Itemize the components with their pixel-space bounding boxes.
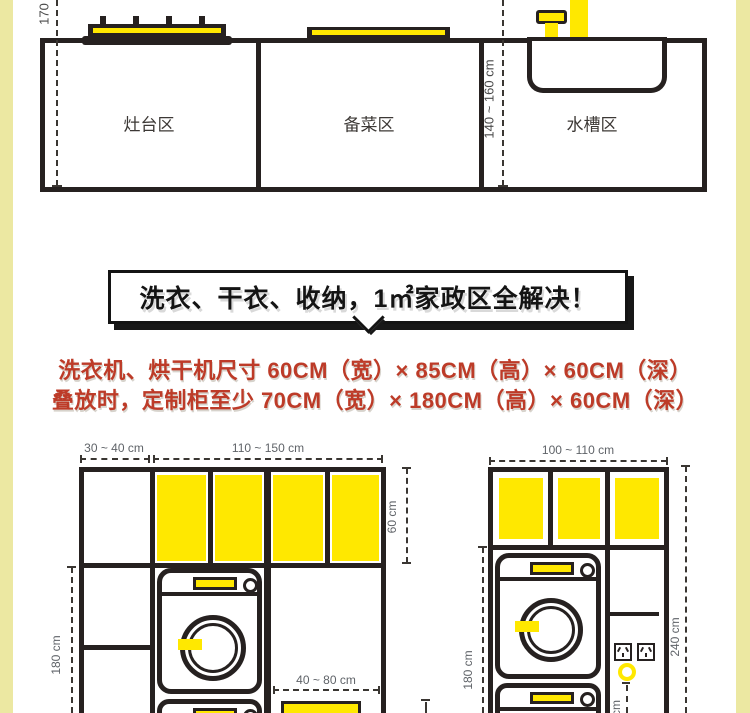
tick (666, 457, 668, 465)
laundry-basket-icon (281, 701, 361, 713)
outlet-hole (622, 653, 624, 657)
dryer-icon (495, 683, 601, 713)
washer-door-handle (515, 621, 539, 632)
sink-icon (527, 37, 667, 93)
dryer-knob (580, 692, 595, 707)
infographic-laundry-area: 灶台区 备菜区 水槽区 170 140 ~ 160 cm 洗衣、干衣、收纳，1㎡… (0, 0, 750, 713)
dim-line (489, 460, 667, 462)
cabinet-door (615, 478, 659, 539)
tick (67, 566, 76, 568)
dim-line-outlet-height (626, 685, 628, 713)
tick (52, 185, 62, 187)
tick (402, 467, 411, 469)
dim-line (273, 689, 379, 691)
cabinet-wall (150, 472, 155, 713)
tick (80, 455, 82, 463)
dim-line-machine-height (482, 547, 484, 713)
dim-right-cabinet-width: 100 ~ 110 cm (542, 443, 614, 457)
dim-line-cut (425, 702, 427, 713)
dim-line-total-height (71, 567, 73, 713)
washer-panel-line (162, 592, 257, 596)
tick (421, 699, 430, 701)
washing-machine-icon (495, 553, 601, 679)
tick (478, 546, 487, 548)
tick (681, 465, 690, 467)
washer-knob (580, 563, 595, 578)
cabinet-shelf (84, 645, 150, 650)
outlet-hole (648, 647, 652, 652)
faucet-spout-icon (536, 10, 567, 24)
power-outlet-icon (637, 643, 655, 661)
tick (489, 457, 491, 465)
zone-label-sink: 水槽区 (567, 111, 618, 136)
dashed-line-hood-height (56, 0, 58, 186)
dryer-panel-line (500, 707, 596, 711)
washer-panel-line (500, 577, 596, 581)
dim-line (80, 458, 150, 460)
dim-shelf-width: 40 ~ 80 cm (296, 673, 356, 687)
washer-panel (193, 577, 237, 590)
cabinet-door (215, 475, 262, 561)
tick (378, 686, 380, 694)
washer-door-handle (178, 639, 202, 650)
spec-line-2: 叠放时，定制柜至少 70CM（宽）× 180CM（高）× 60CM（深） (0, 383, 750, 415)
dryer-knob (243, 709, 258, 713)
tick (148, 455, 150, 463)
cabinet-shelf (610, 612, 659, 616)
cooktop-stripe (93, 28, 221, 33)
cabinet-divider (548, 472, 553, 545)
cabinet-door (273, 475, 323, 561)
cabinet-shelf (493, 545, 664, 550)
dryer-panel (530, 692, 574, 704)
cabinet-wall (264, 472, 271, 713)
zone-label-stove: 灶台区 (124, 111, 175, 136)
dim-line (153, 458, 383, 460)
zone-label-prep: 备菜区 (344, 111, 395, 136)
cabinet-door (157, 475, 206, 561)
tick (402, 562, 411, 564)
water-valve-icon (618, 663, 636, 681)
dim-left-cabinet-right-width: 110 ~ 150 cm (232, 441, 304, 455)
dim-left-cabinet-left-width: 30 ~ 40 cm (84, 441, 144, 455)
washer-knob (243, 578, 258, 593)
dryer-icon (157, 699, 262, 713)
dashed-line-counter-height (502, 0, 504, 186)
tick (498, 185, 508, 187)
dim-line-total-height (685, 466, 687, 713)
tick (153, 455, 155, 463)
cutting-board-stripe (312, 30, 445, 35)
power-outlet-icon (614, 643, 632, 661)
outlet-hole (625, 647, 629, 652)
cabinet-door (558, 478, 600, 539)
outlet-hole (645, 653, 647, 657)
counter-divider (256, 42, 261, 188)
washer-panel (530, 562, 574, 575)
cabinet-wall (605, 472, 610, 713)
dim-line-upper-height (406, 468, 408, 563)
spec-line-1: 洗衣机、烘干机尺寸 60CM（宽）× 85CM（高）× 60CM（深） (0, 353, 750, 385)
tick (622, 682, 630, 684)
faucet-pipe-icon (570, 0, 588, 40)
tick (381, 455, 383, 463)
tick (273, 686, 275, 694)
cabinet-divider (325, 472, 330, 563)
cabinet-door (499, 478, 543, 539)
dryer-panel (193, 708, 237, 713)
outlet-hole (640, 647, 644, 652)
cabinet-door (332, 475, 379, 561)
cabinet-divider (208, 472, 213, 563)
outlet-hole (617, 647, 621, 652)
washing-machine-icon (157, 568, 262, 694)
